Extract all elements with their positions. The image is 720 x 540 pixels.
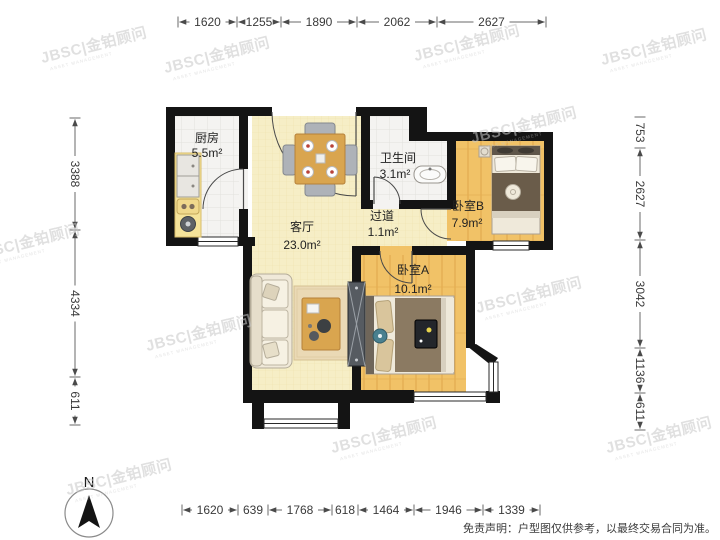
- kitchen-window: [198, 237, 238, 246]
- dimension-label: 1768: [287, 503, 314, 517]
- hallway-area: 1.1m²: [368, 225, 399, 239]
- dimension-label: 4334: [68, 290, 82, 317]
- dimension-label: 3042: [633, 281, 647, 308]
- pillow: [375, 300, 393, 333]
- wardrobe-cabinet: [348, 282, 365, 366]
- dimension-label: 1136: [633, 358, 647, 384]
- stove: [177, 199, 199, 214]
- bedroom-b-area: 7.9m²: [452, 216, 483, 230]
- bathroom-doorway: [373, 200, 399, 209]
- bedroom-a-doorway: [380, 246, 412, 255]
- hallway-label: 过道: [370, 209, 394, 223]
- disclaimer-text: 免责声明：户型图仅供参考，以最终交易合同为准。: [463, 521, 716, 535]
- dining-chair: [305, 183, 335, 196]
- pillow: [495, 156, 517, 171]
- dimension-label: 1255: [246, 15, 273, 29]
- bedroom-b-label: 卧室B: [452, 198, 484, 213]
- dimension-label: 3388: [68, 161, 82, 188]
- dining-chair: [283, 145, 296, 175]
- pillow: [516, 156, 538, 171]
- bedroom-a-area: 10.1m²: [394, 282, 431, 296]
- bedroom-a-window: [414, 392, 486, 401]
- pillow: [375, 338, 393, 371]
- floor-plan-page: 厨房 5.5m² 客厅 23.0m² 卫生间 3.1m² 过道 1.1m² 卧室…: [0, 0, 720, 540]
- dimension-label: 618: [335, 503, 355, 517]
- kitchen-counter: [175, 153, 201, 237]
- dimension-label: 2627: [633, 181, 647, 208]
- dimension-label: 1339: [498, 503, 525, 517]
- sofa: [250, 274, 292, 368]
- coffee-table: [302, 298, 340, 350]
- dimension-label: 1620: [197, 503, 224, 517]
- bathroom-area: 3.1m²: [380, 167, 411, 181]
- dimension-label: 753: [633, 122, 647, 142]
- dimension-label: 1946: [435, 503, 462, 517]
- bed-tray: [415, 320, 437, 348]
- bathroom-label: 卫生间: [380, 151, 416, 165]
- dimension-label: 2062: [384, 15, 411, 29]
- kitchen-label: 厨房: [195, 130, 219, 145]
- dimension-label: 1620: [194, 15, 221, 29]
- bedroom-a-bay-window-side: [489, 362, 498, 392]
- dimension-label: 611: [68, 391, 82, 410]
- dimension-label: 1464: [373, 503, 400, 517]
- dimension-label: 611: [633, 402, 647, 421]
- kitchen-area: 5.5m²: [192, 146, 223, 160]
- bedroom-a-label: 卧室A: [397, 262, 429, 277]
- bed-bedroom-a: [366, 296, 454, 374]
- bedroom-b-window: [493, 241, 529, 250]
- living-room-bay-window: [264, 419, 338, 428]
- dimension-label: 639: [243, 503, 263, 517]
- living-label: 客厅: [290, 219, 314, 234]
- washbasin: [414, 166, 446, 183]
- sofa-pillow: [263, 342, 280, 359]
- dining-chair: [344, 145, 357, 175]
- dimension-label: 1890: [306, 15, 333, 29]
- floor-plan: 厨房 5.5m² 客厅 23.0m² 卫生间 3.1m² 过道 1.1m² 卧室…: [0, 0, 720, 540]
- living-area: 23.0m²: [283, 238, 320, 252]
